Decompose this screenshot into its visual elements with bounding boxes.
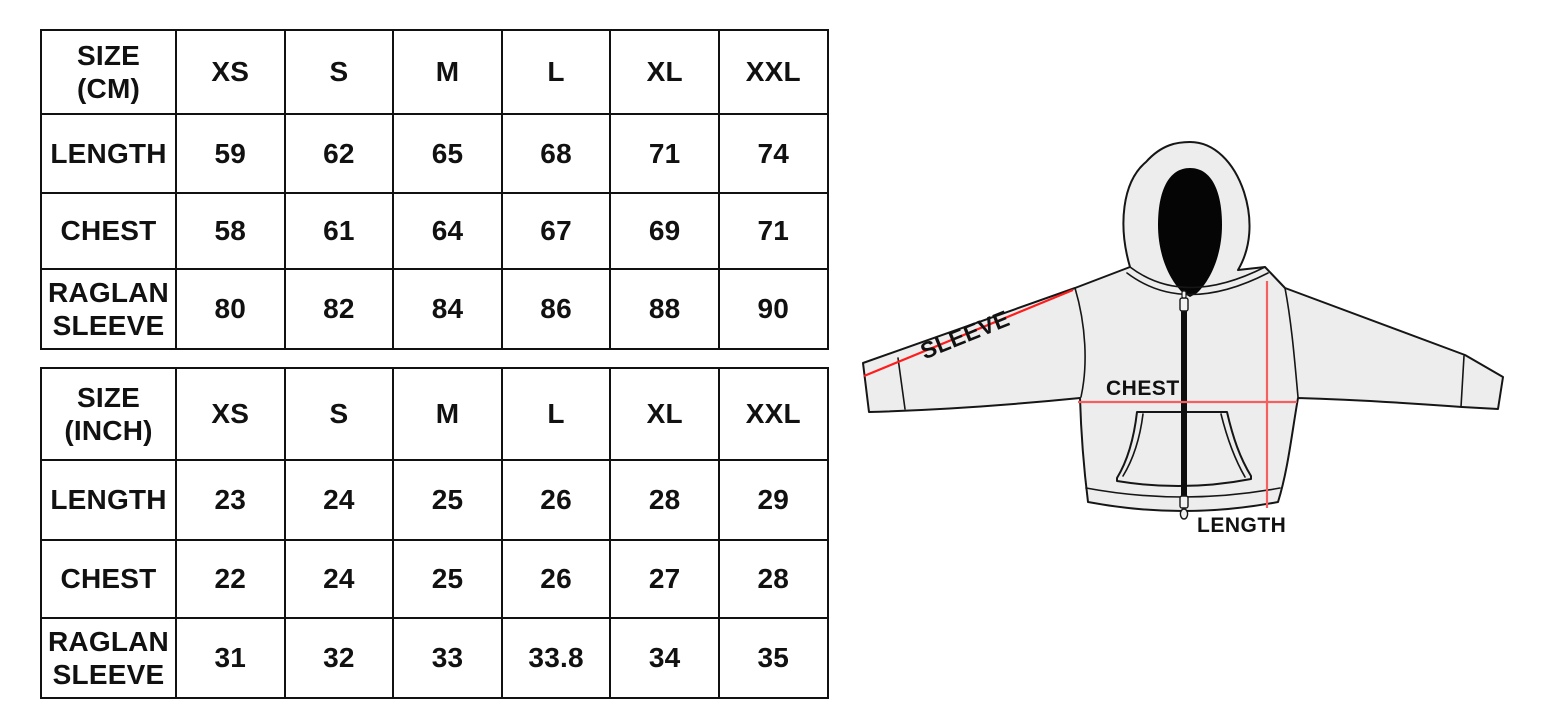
unit-header-line2: (CM): [42, 72, 175, 105]
column-header: XS: [176, 368, 285, 460]
table-header-row: SIZE (CM) XS S M L XL XXL: [41, 30, 828, 114]
size-value-cell: 24: [285, 540, 394, 618]
size-value-cell: 71: [719, 193, 828, 269]
unit-header-cell: SIZE (INCH): [41, 368, 176, 460]
size-value-cell: 64: [393, 193, 502, 269]
size-value-cell: 69: [610, 193, 719, 269]
row-label: RAGLAN SLEEVE: [41, 618, 176, 698]
size-value-cell: 58: [176, 193, 285, 269]
column-header: L: [502, 368, 611, 460]
size-value-cell: 31: [176, 618, 285, 698]
column-header: XS: [176, 30, 285, 114]
size-value-cell: 88: [610, 269, 719, 349]
size-table-inch: SIZE (INCH) XS S M L XL XXL LENGTH 23 24…: [40, 367, 829, 699]
size-value-cell: 24: [285, 460, 394, 540]
zipper-slider-top: [1180, 298, 1188, 311]
table-row: CHEST 22 24 25 26 27 28: [41, 540, 828, 618]
unit-header-cell: SIZE (CM): [41, 30, 176, 114]
size-value-cell: 35: [719, 618, 828, 698]
size-value-cell: 84: [393, 269, 502, 349]
row-label: LENGTH: [41, 114, 176, 193]
column-header: XXL: [719, 30, 828, 114]
size-value-cell: 65: [393, 114, 502, 193]
column-header: M: [393, 368, 502, 460]
size-value-cell: 34: [610, 618, 719, 698]
size-value-cell: 80: [176, 269, 285, 349]
size-value-cell: 26: [502, 460, 611, 540]
size-value-cell: 71: [610, 114, 719, 193]
size-value-cell: 28: [610, 460, 719, 540]
size-value-cell: 25: [393, 460, 502, 540]
table-row: RAGLAN SLEEVE 31 32 33 33.8 34 35: [41, 618, 828, 698]
size-value-cell: 68: [502, 114, 611, 193]
size-value-cell: 86: [502, 269, 611, 349]
chest-label: CHEST: [1106, 377, 1180, 400]
unit-header-line1: SIZE: [42, 39, 175, 72]
column-header: XL: [610, 30, 719, 114]
size-table-cm: SIZE (CM) XS S M L XL XXL LENGTH 59 62 6…: [40, 29, 829, 350]
size-value-cell: 62: [285, 114, 394, 193]
column-header: XL: [610, 368, 719, 460]
column-header: S: [285, 368, 394, 460]
row-label: CHEST: [41, 540, 176, 618]
size-chart-page: SIZE (CM) XS S M L XL XXL LENGTH 59 62 6…: [0, 0, 1544, 721]
size-value-cell: 61: [285, 193, 394, 269]
size-value-cell: 82: [285, 269, 394, 349]
size-value-cell: 23: [176, 460, 285, 540]
size-value-cell: 32: [285, 618, 394, 698]
size-value-cell: 59: [176, 114, 285, 193]
size-value-cell: 67: [502, 193, 611, 269]
size-value-cell: 33: [393, 618, 502, 698]
unit-header-line1: SIZE: [42, 381, 175, 414]
column-header: L: [502, 30, 611, 114]
column-header: M: [393, 30, 502, 114]
size-value-cell: 90: [719, 269, 828, 349]
column-header: XXL: [719, 368, 828, 460]
hoodie-measurement-diagram: SLEEVE CHEST LENGTH: [840, 130, 1540, 550]
table-header-row: SIZE (INCH) XS S M L XL XXL: [41, 368, 828, 460]
size-value-cell: 33.8: [502, 618, 611, 698]
column-header: S: [285, 30, 394, 114]
unit-header-line2: (INCH): [42, 414, 175, 447]
size-value-cell: 22: [176, 540, 285, 618]
table-row: CHEST 58 61 64 67 69 71: [41, 193, 828, 269]
row-label: RAGLAN SLEEVE: [41, 269, 176, 349]
size-value-cell: 29: [719, 460, 828, 540]
size-value-cell: 28: [719, 540, 828, 618]
zipper-pull-bottom: [1180, 509, 1187, 519]
table-row: LENGTH 59 62 65 68 71 74: [41, 114, 828, 193]
zipper-slider-bottom: [1180, 496, 1188, 508]
zipper-pull-top: [1182, 291, 1186, 298]
size-value-cell: 25: [393, 540, 502, 618]
row-label: LENGTH: [41, 460, 176, 540]
size-value-cell: 26: [502, 540, 611, 618]
row-label: CHEST: [41, 193, 176, 269]
size-value-cell: 74: [719, 114, 828, 193]
size-value-cell: 27: [610, 540, 719, 618]
table-row: RAGLAN SLEEVE 80 82 84 86 88 90: [41, 269, 828, 349]
length-label: LENGTH: [1197, 514, 1286, 537]
table-row: LENGTH 23 24 25 26 28 29: [41, 460, 828, 540]
